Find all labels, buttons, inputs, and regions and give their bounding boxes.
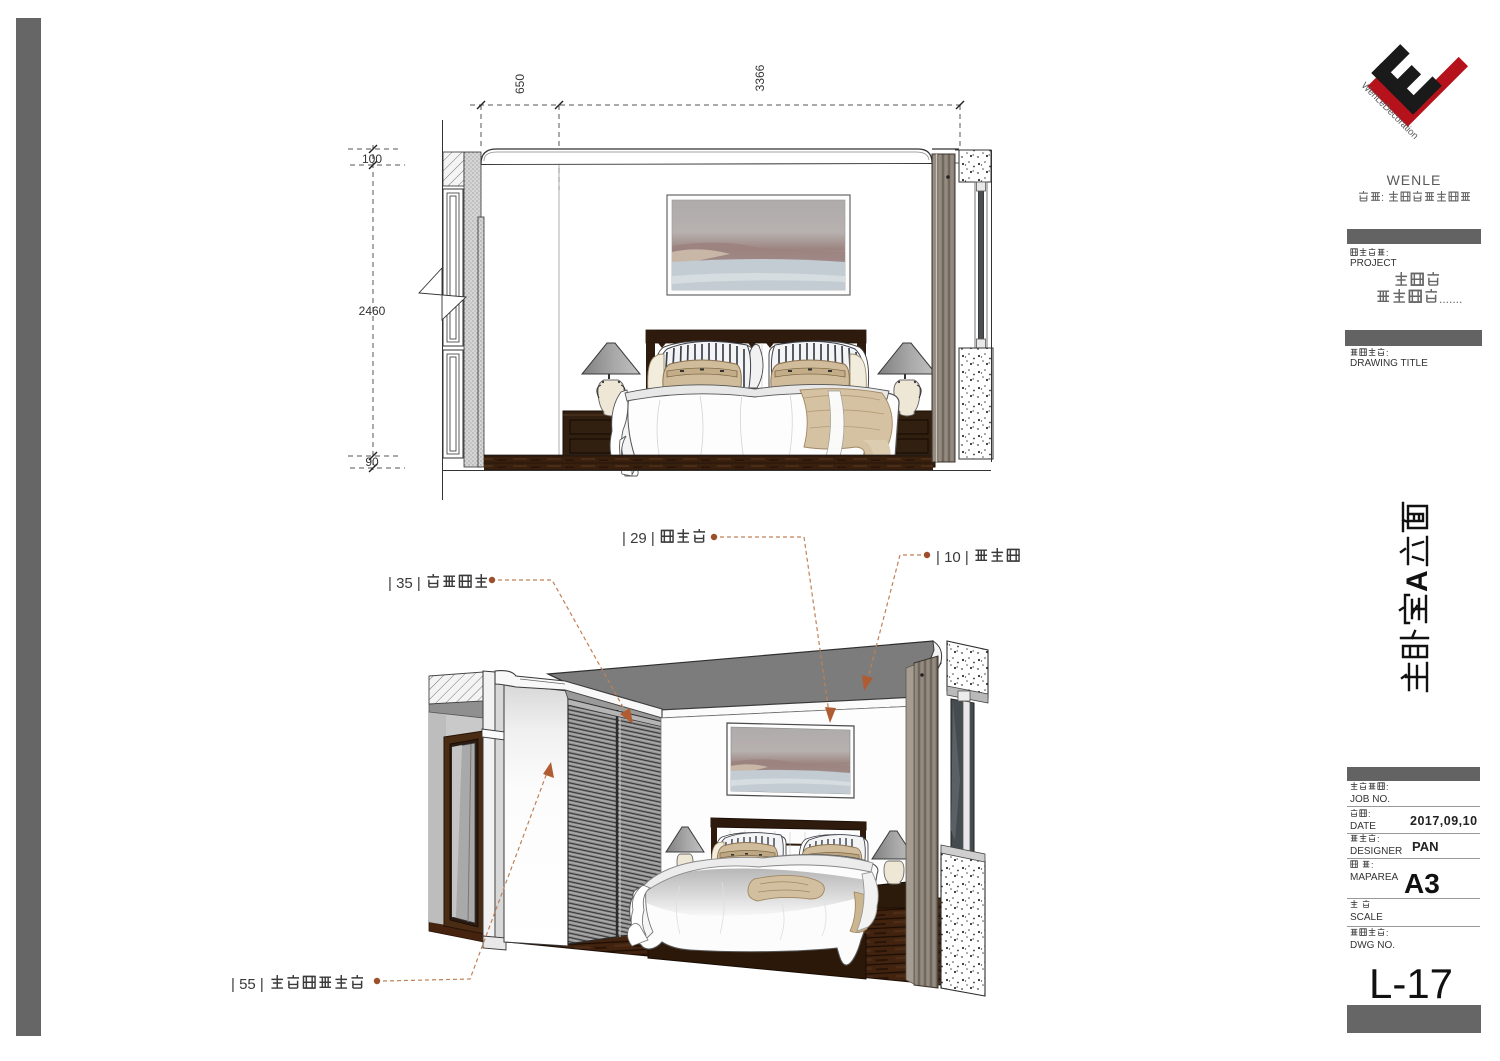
svg-text:650: 650 (513, 74, 527, 94)
svg-text:L-17: L-17 (1369, 960, 1453, 1007)
svg-text:DRAWING TITLE: DRAWING TITLE (1350, 358, 1428, 369)
svg-text:JOB NO.: JOB NO. (1350, 794, 1390, 805)
svg-text::: : (1381, 192, 1384, 204)
svg-text::: : (1386, 348, 1389, 358)
svg-text:A3: A3 (1404, 868, 1440, 899)
svg-text::: : (1368, 809, 1371, 819)
svg-text:.......: ....... (1439, 292, 1462, 306)
svg-text:| 10 |: | 10 | (936, 549, 969, 566)
svg-text:MAPAREA: MAPAREA (1350, 872, 1398, 883)
svg-text::: : (1386, 782, 1389, 792)
svg-text:| 55 |: | 55 | (231, 976, 264, 993)
svg-text::: : (1371, 860, 1374, 870)
svg-text:90: 90 (365, 455, 379, 469)
svg-text::: : (1386, 928, 1389, 938)
svg-text:100: 100 (362, 152, 382, 166)
svg-text:DATE: DATE (1350, 821, 1376, 832)
svg-text:A: A (1401, 570, 1434, 592)
svg-text::: : (1386, 248, 1389, 258)
svg-text:DWG NO.: DWG NO. (1350, 940, 1395, 951)
svg-text:DESIGNER: DESIGNER (1350, 846, 1402, 857)
svg-text:| 35 |: | 35 | (388, 575, 421, 592)
svg-text:PAN: PAN (1412, 839, 1438, 854)
svg-text:PROJECT: PROJECT (1350, 258, 1397, 269)
svg-text:SCALE: SCALE (1350, 912, 1383, 923)
svg-text:| 29 |: | 29 | (622, 530, 655, 547)
svg-text:2460: 2460 (359, 304, 386, 318)
svg-text:3366: 3366 (753, 64, 767, 91)
svg-text:WENLE: WENLE (1387, 172, 1442, 188)
svg-text:2017,09,10: 2017,09,10 (1410, 814, 1478, 828)
svg-text::: : (1377, 834, 1380, 844)
